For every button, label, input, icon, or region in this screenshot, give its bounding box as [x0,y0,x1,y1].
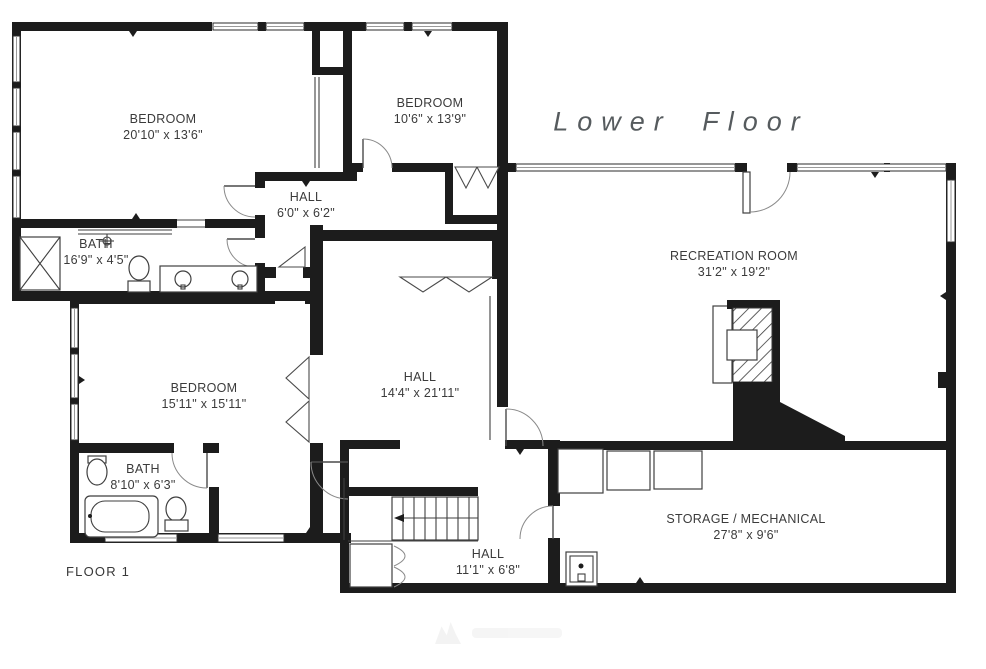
room-label-bath-top: BATH16'9" x 4'5" [63,236,128,268]
water-heater [566,552,597,586]
watermark [430,618,570,648]
room-label-bedroom-middle: BEDROOM10'6" x 13'9" [394,95,466,127]
floor-plan: BEDROOM20'10" x 13'6" BEDROOM10'6" x 13'… [0,0,986,669]
room-label-hall-bottom: HALL11'1" x 6'8" [456,546,520,578]
bathtub [85,496,158,537]
room-label-bedroom-top-left: BEDROOM20'10" x 13'6" [123,111,203,143]
toilet-lower-bath [165,497,188,531]
room-label-recreation-room: RECREATION ROOM31'2" x 19'2" [670,248,798,280]
plan-title: Lower Floor [553,107,809,138]
floor-label: FLOOR 1 [66,564,130,579]
toilet-top-bath [128,256,150,292]
room-label-bedroom-lower: BEDROOM15'11" x 15'11" [161,380,246,412]
room-label-hall-central: HALL14'4" x 21'11" [381,369,460,401]
fireplace [713,300,845,450]
stairs [392,497,478,540]
mechanical-equipment [558,449,702,493]
room-label-bath-lower: BATH8'10" x 6'3" [110,461,175,493]
watermark-text-bar [472,628,562,638]
pedestal-sink [87,456,107,485]
watermark-logo-icon [435,622,461,644]
room-label-storage-mechanical: STORAGE / MECHANICAL27'8" x 9'6" [666,511,825,543]
room-label-hall-small: HALL6'0" x 6'2" [277,189,335,221]
